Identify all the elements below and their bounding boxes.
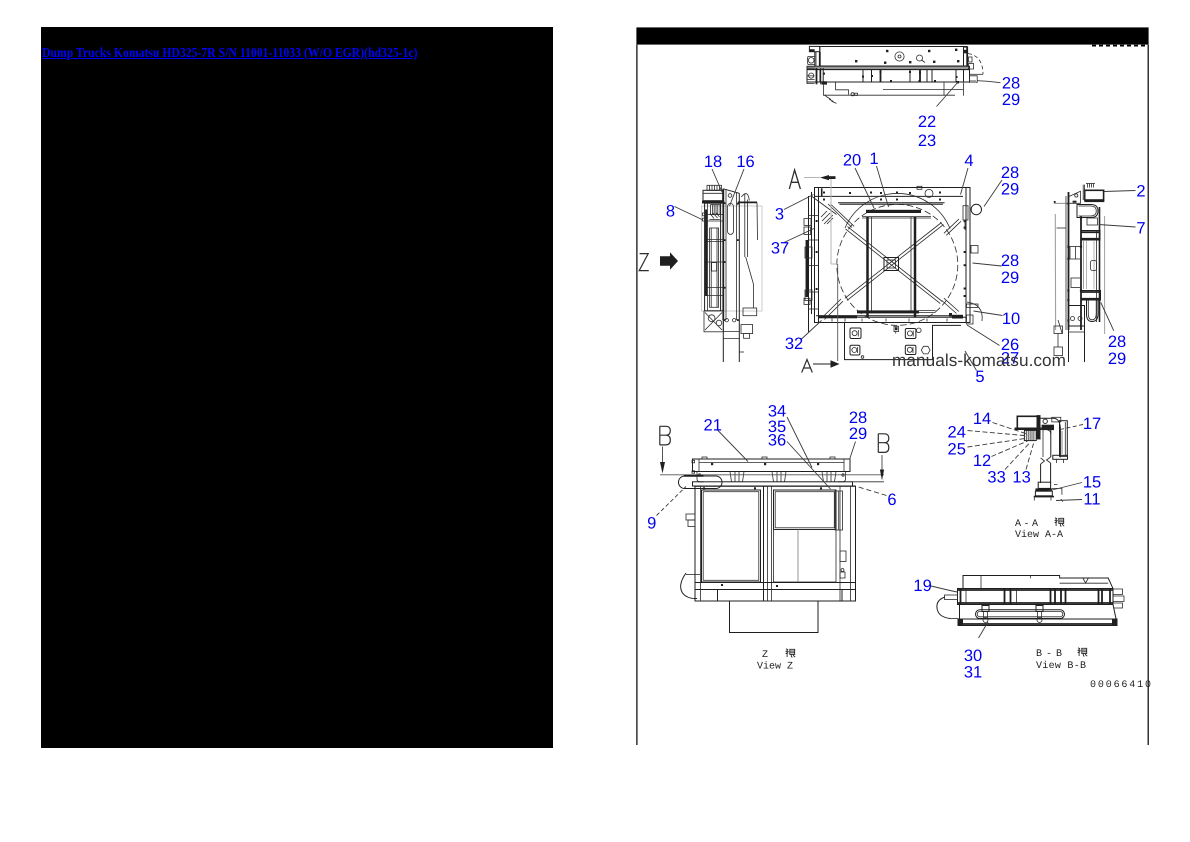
svg-text:13: 13 [1012,469,1030,487]
svg-text:36: 36 [768,432,786,450]
svg-text:30: 30 [964,647,982,665]
svg-text:View Z: View Z [757,661,793,673]
svg-text:28: 28 [1001,164,1019,182]
svg-text:2: 2 [1136,183,1145,201]
svg-text:12: 12 [973,452,991,470]
svg-text:4: 4 [964,152,973,170]
svg-text:28: 28 [1001,252,1019,270]
svg-text:6: 6 [887,491,896,509]
svg-text:29: 29 [1108,350,1126,368]
svg-text:29: 29 [1002,91,1020,109]
svg-text:00066410: 00066410 [1090,680,1151,691]
svg-text:11: 11 [1083,491,1100,509]
svg-text:Z: Z [762,650,768,661]
svg-text:9: 9 [647,515,656,533]
svg-text:31: 31 [964,664,982,682]
svg-text:20: 20 [843,152,861,170]
svg-text:5: 5 [975,368,984,386]
svg-text:29: 29 [849,425,867,443]
svg-text:15: 15 [1083,474,1101,492]
svg-text:33: 33 [987,469,1005,487]
svg-text:3: 3 [775,206,784,224]
svg-text:37: 37 [771,240,789,258]
svg-text:21: 21 [704,417,722,435]
svg-text:17: 17 [1083,415,1101,433]
svg-text:19: 19 [913,577,931,595]
svg-text:10: 10 [1002,310,1020,328]
svg-text:29: 29 [1001,269,1019,287]
svg-text:manuals-komatsu.com: manuals-komatsu.com [892,350,1066,370]
svg-text:29: 29 [1001,181,1019,199]
svg-text:A - A: A - A [1015,519,1038,530]
svg-text:View B-B: View B-B [1036,660,1086,672]
svg-text:32: 32 [785,335,803,353]
svg-text:23: 23 [918,132,936,150]
svg-text:1: 1 [869,150,878,168]
svg-text:28: 28 [1108,333,1126,351]
svg-text:B - B: B - B [1036,649,1062,660]
svg-text:7: 7 [1136,220,1145,238]
svg-text:16: 16 [736,153,754,171]
svg-text:24: 24 [948,424,966,442]
svg-text:14: 14 [973,410,991,428]
svg-text:22: 22 [918,113,936,131]
svg-text:View A-A: View A-A [1015,529,1063,541]
svg-text:8: 8 [666,203,675,221]
svg-text:28: 28 [1002,75,1020,93]
svg-text:18: 18 [704,153,722,171]
svg-text:25: 25 [948,441,966,459]
